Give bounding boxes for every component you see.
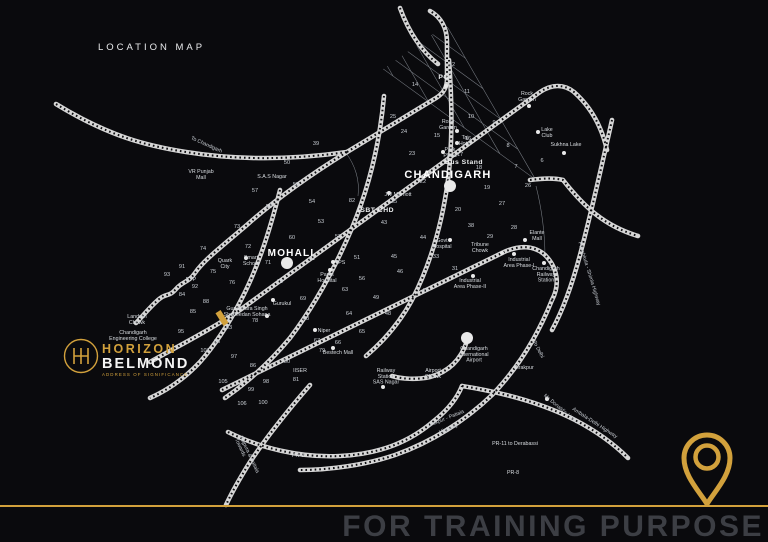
- sector-number-label: 76: [229, 280, 235, 286]
- sector-number-label: 38: [468, 223, 474, 229]
- poi-label: Hospital: [317, 278, 336, 284]
- sector-number-label: 71: [265, 260, 271, 266]
- road-name-label: Panchkula - Shimla Highway: [576, 241, 601, 306]
- sector-number-label: 97: [231, 354, 237, 360]
- poi-label: Garden: [518, 97, 536, 103]
- sector-number-label: 85: [190, 309, 196, 315]
- sector-number-label: 73: [234, 224, 240, 230]
- grid-line: [306, 0, 394, 76]
- city-dot: [444, 180, 456, 192]
- grid-line: [270, 0, 358, 50]
- sector-number-label: 55: [293, 182, 299, 188]
- road-path: [56, 104, 347, 158]
- poi-label: Zirakpur: [514, 365, 534, 371]
- sector-number-label: 33: [433, 254, 439, 260]
- grid-line: [178, 0, 518, 149]
- map-canvas: 1214112510924151623817187626221935822027…: [0, 0, 768, 542]
- sector-number-label: 86: [250, 363, 256, 369]
- logo-monogram-icon: [74, 348, 88, 364]
- sector-number-label: 12: [449, 62, 455, 68]
- road-dash-pattern: [347, 11, 447, 152]
- poi-dot: [527, 104, 531, 108]
- sector-number-label: 60: [289, 235, 295, 241]
- poi-label: JW Marriott: [384, 192, 412, 198]
- poi-label: IISER: [293, 368, 307, 374]
- sector-number-label: 75: [210, 269, 216, 275]
- sector-number-label: 106: [237, 401, 246, 407]
- poi-label: Chowk: [472, 248, 489, 254]
- sector-number-label: 70: [277, 279, 283, 285]
- sector-number-label: 9: [492, 120, 495, 126]
- grid-line: [217, 0, 305, 11]
- poi-label: Bus Stand: [445, 159, 483, 166]
- sector-number-label: 10: [468, 114, 474, 120]
- sector-number-label: 96: [214, 339, 220, 345]
- map-generated-layer: 1214112510924151623817187626221935822027…: [56, 0, 638, 505]
- city-label: MOHALI: [268, 248, 315, 259]
- poi-label: Bestech Mall: [323, 350, 353, 356]
- sector-number-label: 69: [300, 296, 306, 302]
- brand-name-belmond: BELMOND: [102, 356, 189, 372]
- city-dot: [461, 332, 473, 344]
- sector-number-label: 93: [164, 272, 170, 278]
- poi-label: City: [220, 264, 229, 270]
- poi-label: Niper: [318, 328, 331, 334]
- grid-line: [536, 186, 545, 258]
- sector-number-label: 98: [263, 379, 269, 385]
- sector-number-label: 49: [373, 295, 379, 301]
- poi-dot: [562, 151, 566, 155]
- road-dash-pattern: [228, 386, 462, 456]
- sector-number-label: 39: [313, 141, 319, 147]
- sector-number-label: 84: [179, 292, 185, 298]
- road-name-label: Highway: [438, 422, 459, 435]
- sector-number-label: 57: [252, 188, 258, 194]
- poi-label: Engineering College: [109, 336, 157, 342]
- location-pin-icon: [684, 435, 730, 504]
- sector-number-label: 82: [349, 198, 355, 204]
- sector-number-label: 44: [420, 235, 426, 241]
- poi-dot: [512, 252, 516, 256]
- sector-number-label: 48: [385, 311, 391, 317]
- poi-label: Station: [538, 278, 555, 284]
- sector-number-label: 46: [397, 269, 403, 275]
- brand-logo: HORIZON BELMOND ADDRESS OF SIGNIFICANCE: [65, 340, 190, 378]
- poi-dot: [536, 130, 540, 134]
- poi-label: Airport: [466, 358, 482, 364]
- sector-number-label: 65: [359, 329, 365, 335]
- poi-label: Hotel: [459, 141, 471, 147]
- poi-label: PGI: [438, 74, 451, 81]
- grid-line: [196, 0, 536, 180]
- poi-label: Club: [542, 133, 553, 139]
- sector-number-label: 45: [391, 254, 397, 260]
- sector-number-label: 7: [514, 164, 517, 170]
- sector-number-label: 66: [335, 340, 341, 346]
- poi-label: Area Phase-II: [454, 284, 486, 290]
- sector-number-label: 29: [487, 234, 493, 240]
- poi-label: Shaheedan Sohana: [224, 312, 271, 318]
- sector-number-label: 25: [390, 114, 396, 120]
- sector-number-label: 11: [464, 89, 470, 95]
- poi-dot: [500, 251, 504, 255]
- sector-number-label: 6: [540, 158, 543, 164]
- poi-label: Plaza: [443, 153, 456, 159]
- road-dash-pattern: [56, 104, 347, 158]
- sector-number-label: 105: [218, 379, 227, 385]
- sector-number-label: 52: [335, 234, 341, 240]
- sector-number-label: 92: [192, 284, 198, 290]
- sector-number-label: 24: [401, 129, 407, 135]
- sector-number-label: 64: [346, 311, 352, 317]
- sector-number-label: 51: [354, 255, 360, 261]
- poi-dot: [313, 328, 317, 332]
- road-path: [530, 179, 638, 237]
- poi-label: Mall: [532, 236, 542, 242]
- poi-label: School: [243, 261, 259, 267]
- sector-number-label: 35: [391, 199, 397, 205]
- sector-number-label: 91: [179, 264, 185, 270]
- sector-number-label: 53: [318, 219, 324, 225]
- sector-number-label: 17: [457, 152, 463, 158]
- sector-number-label: 27: [499, 201, 505, 207]
- sector-number-label: 54: [309, 199, 315, 205]
- sector-number-label: 80: [284, 359, 290, 365]
- poi-label: Mall: [196, 175, 206, 181]
- sector-number-label: 19: [484, 185, 490, 191]
- sector-number-label: 23: [409, 151, 415, 157]
- sector-number-label: 100: [258, 400, 267, 406]
- brand-name-horizon: HORIZON: [102, 342, 177, 356]
- page-title: LOCATION MAP: [98, 42, 205, 53]
- location-map-page: 1214112510924151623817187626221935822027…: [0, 0, 768, 542]
- sector-number-label: 78: [252, 318, 258, 324]
- sector-number-label: 72: [245, 244, 251, 250]
- grid-line: [108, 0, 448, 28]
- road-path: [347, 11, 447, 152]
- sector-number-label: 43: [381, 220, 387, 226]
- sector-number-label: 26: [525, 183, 531, 189]
- sector-number-label: 74: [200, 246, 206, 252]
- road-dash-pattern: [530, 179, 638, 237]
- poi-label: Hospital: [432, 244, 451, 250]
- sector-number-label: 99: [248, 387, 254, 393]
- sector-number-label: 8: [506, 143, 509, 149]
- sector-number-label: 58: [266, 204, 272, 210]
- poi-label: Garden: [439, 125, 457, 131]
- training-watermark: FOR TRAINING PURPOSE: [342, 510, 764, 542]
- poi-dot: [523, 238, 527, 242]
- sector-number-label: 68: [303, 316, 309, 322]
- poi-label: ISBT CHD: [358, 207, 394, 214]
- poi-label: YPS: [335, 260, 346, 266]
- poi-label: SAS Nagar: [373, 380, 400, 386]
- poi-label: Gurukul: [273, 301, 292, 307]
- city-label: CHANDIGARH: [404, 169, 491, 181]
- sector-number-label: 31: [452, 266, 458, 272]
- sector-number-label: 56: [359, 276, 365, 282]
- sector-number-label: 83: [226, 325, 232, 331]
- sector-number-label: 81: [293, 377, 299, 383]
- grid-line: [234, 0, 322, 24]
- road-name-label: To Delhi: [531, 340, 545, 359]
- poi-label: S.A.S Nagar: [257, 174, 287, 180]
- poi-dot: [444, 84, 448, 88]
- sector-number-label: 88: [203, 299, 209, 305]
- poi-label: Sukhna Lake: [551, 142, 582, 148]
- sector-number-label: 15: [434, 133, 440, 139]
- poi-label: PR-11 to Derabassi: [492, 441, 538, 447]
- sector-number-label: 47: [422, 288, 428, 294]
- sector-number-label: 107: [200, 348, 209, 354]
- sector-number-label: 95: [178, 329, 184, 335]
- grid-line: [346, 153, 358, 196]
- poi-label: PR-9: [292, 453, 304, 459]
- poi-label: Chowk: [425, 374, 442, 380]
- poi-label: PR-8: [507, 470, 519, 476]
- sector-number-label: 28: [511, 225, 517, 231]
- poi-dot: [542, 261, 546, 265]
- sector-number-label: 14: [412, 82, 418, 88]
- sector-number-label: 50: [284, 160, 290, 166]
- sector-number-label: FTP: [186, 277, 197, 283]
- brand-tagline: ADDRESS OF SIGNIFICANCE: [102, 372, 188, 377]
- sector-number-label: 63: [342, 287, 348, 293]
- poi-dot: [448, 238, 452, 242]
- sector-number-label: 67: [314, 338, 320, 344]
- sector-number-label: 20: [455, 207, 461, 213]
- road-path: [552, 120, 612, 330]
- poi-label: Chowk: [129, 320, 146, 326]
- road-path: [400, 8, 438, 64]
- poi-label: Area Phase-I: [504, 263, 535, 269]
- sector-grid: [108, 0, 535, 180]
